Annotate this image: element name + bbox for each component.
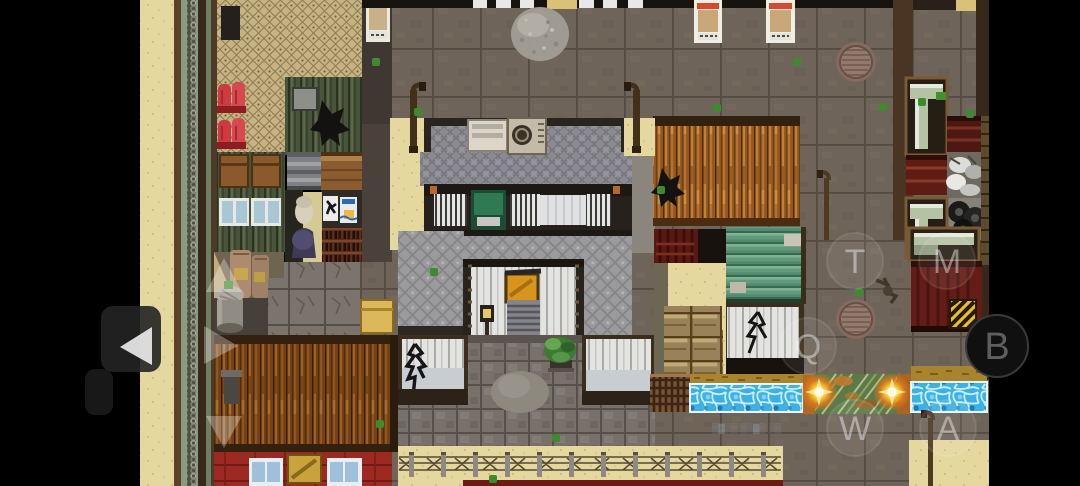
svg-text:T: T	[845, 243, 866, 281]
svg-text:Q: Q	[795, 328, 821, 366]
svg-text:A: A	[937, 410, 960, 448]
svg-text:W: W	[839, 410, 871, 448]
svg-text:▒▓░▒ ▒░▓▒ ░▒: ▒▓░▒ ▒░▓▒ ░▒	[712, 423, 782, 434]
svg-text:B: B	[984, 326, 1009, 368]
svg-text:M: M	[933, 243, 961, 281]
